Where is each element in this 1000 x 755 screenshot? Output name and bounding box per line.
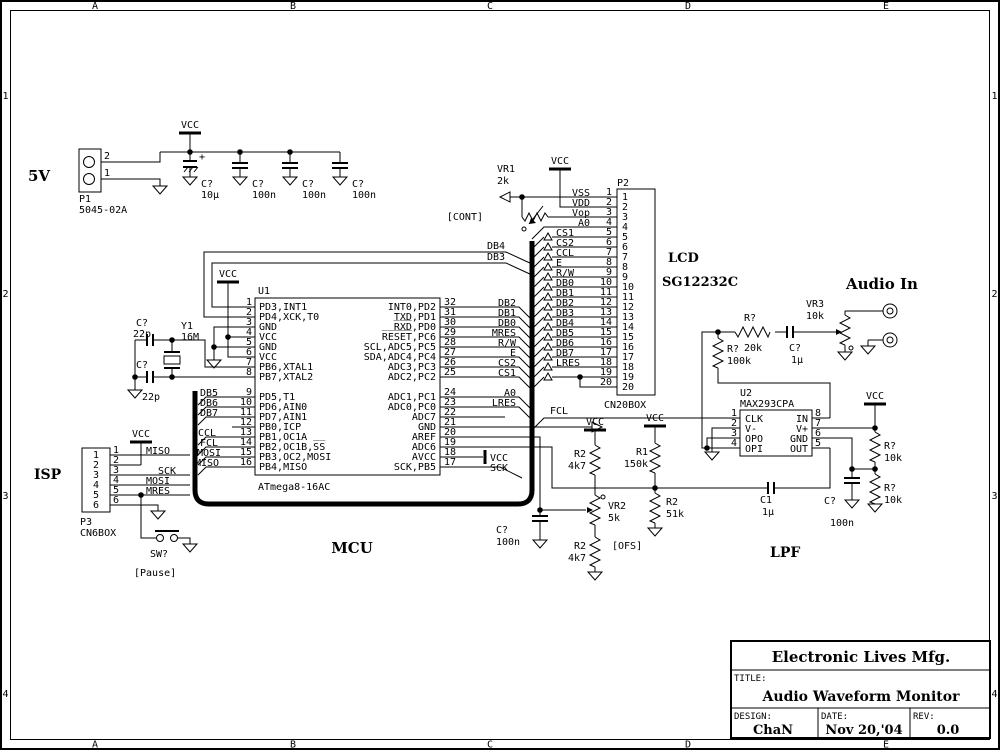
date-value: Nov 20,'04 bbox=[825, 723, 902, 738]
frame-col: D bbox=[685, 1, 691, 12]
schematic-title: Audio Waveform Monitor bbox=[762, 689, 961, 705]
ref-designator: P1 bbox=[79, 194, 91, 205]
vcc-symbol-label: VCC bbox=[181, 120, 199, 131]
trimmer-mark bbox=[601, 495, 605, 499]
section-label-5v: 5V bbox=[28, 167, 50, 185]
part-value: 1µ bbox=[791, 355, 803, 366]
ref-designator: C? bbox=[824, 496, 836, 507]
trimmer-vr3 bbox=[840, 315, 850, 345]
title-block: Electronic Lives Mfg. TITLE: Audio Wavef… bbox=[731, 641, 990, 738]
net-label: DB3 bbox=[487, 252, 505, 263]
bias-network: VCC R1 150k R2 51k bbox=[624, 413, 684, 528]
resistor-r2-51k bbox=[650, 493, 660, 523]
frame-row: 3 bbox=[991, 491, 997, 502]
pin-number: 25 bbox=[444, 367, 456, 378]
audio-input-section: Audio In R? 20k C? 1µ VR3 10k bbox=[718, 275, 918, 366]
section-label-lpf: LPF bbox=[770, 545, 800, 561]
net-label: MISO bbox=[146, 446, 170, 457]
power-section: 5V VCC 2 1 P1 5045-02A + C? 10µ C? 100n … bbox=[28, 120, 376, 216]
part-value: 100n bbox=[302, 190, 326, 201]
function-note: [Pause] bbox=[134, 568, 176, 579]
pin-label: SCK,PB5 bbox=[394, 462, 436, 473]
part-value: 20k bbox=[744, 343, 762, 354]
part-value: 10k bbox=[884, 453, 902, 464]
pin-number: 6 bbox=[113, 495, 119, 506]
net-label: FCL bbox=[550, 406, 568, 417]
design-label: DESIGN: bbox=[734, 712, 772, 722]
frame-col: B bbox=[290, 740, 296, 751]
crystal-body bbox=[164, 356, 180, 364]
net-label: MRES bbox=[146, 486, 170, 497]
net-label: A0 bbox=[578, 218, 590, 229]
part-value: 100k bbox=[727, 356, 751, 367]
function-note: [OFS] bbox=[612, 541, 642, 552]
cap-plates bbox=[768, 478, 860, 494]
pin-label: PB4,MISO bbox=[259, 462, 307, 473]
vcc-symbol-label: VCC bbox=[132, 429, 150, 440]
ref-designator: C? bbox=[352, 179, 364, 190]
pin-number: 1 bbox=[104, 168, 110, 179]
section-label-lcd: LCD bbox=[668, 251, 699, 266]
pin-number: 5 bbox=[815, 438, 821, 449]
frame-row: 1 bbox=[991, 91, 997, 102]
ref-designator: P2 bbox=[617, 178, 629, 189]
frame-row: 2 bbox=[991, 289, 997, 300]
polarity-plus: + bbox=[199, 152, 205, 163]
schematic-page: A B C D E A B C D E 1 2 3 4 1 2 3 4 Elec… bbox=[0, 0, 1000, 750]
company-name: Electronic Lives Mfg. bbox=[772, 648, 951, 666]
vcc-symbol-label: VCC bbox=[586, 417, 604, 428]
ref-designator: R1 bbox=[636, 447, 648, 458]
net-label: LRES bbox=[556, 358, 580, 369]
pin-number: 6 bbox=[93, 500, 99, 511]
ref-designator: R? bbox=[884, 441, 896, 452]
part-value: MAX293CPA bbox=[740, 399, 794, 410]
ofs-network: VCC R2 4k7 VR2 5k R2 4k7 [OFS] bbox=[568, 417, 642, 572]
frame-col: C bbox=[487, 740, 493, 751]
section-label-audio-in: Audio In bbox=[845, 275, 918, 293]
part-value: 100n bbox=[352, 190, 376, 201]
vss-arrow bbox=[500, 192, 510, 202]
part-value: 22p bbox=[133, 329, 151, 340]
pin-label: OUT bbox=[790, 444, 808, 455]
frame-row: 3 bbox=[2, 491, 8, 502]
net-label: LRES bbox=[492, 398, 516, 409]
resistor-r2-bottom bbox=[590, 537, 600, 567]
bus-entry-triangles bbox=[544, 233, 552, 380]
pin-number: 17 bbox=[444, 457, 456, 468]
part-value: CN6BOX bbox=[80, 528, 116, 539]
date-label: DATE: bbox=[821, 712, 848, 722]
ref-designator: VR2 bbox=[608, 501, 626, 512]
ref-designator: R? bbox=[884, 483, 896, 494]
p1-pin2-circle bbox=[84, 157, 95, 168]
resistor-10k-bottom bbox=[870, 474, 880, 504]
frame-col: C bbox=[487, 1, 493, 12]
frame-row: 4 bbox=[2, 689, 8, 700]
aref-cap-plates bbox=[532, 516, 548, 521]
cap-plates bbox=[787, 326, 793, 338]
part-value: 51k bbox=[666, 509, 684, 520]
title-label: TITLE: bbox=[734, 674, 767, 684]
ref-designator: R2 bbox=[666, 497, 678, 508]
frame-row: 2 bbox=[2, 289, 8, 300]
switch-contact bbox=[157, 535, 164, 542]
pin-label: PB7,XTAL2 bbox=[259, 372, 313, 383]
ref-designator: R? bbox=[727, 344, 739, 355]
pin-label: ADC2,PC2 bbox=[388, 372, 436, 383]
part-value: 2k bbox=[497, 176, 509, 187]
part-value: 16M bbox=[181, 332, 199, 343]
net-label: DB7 bbox=[200, 408, 218, 419]
section-label-mcu: MCU bbox=[331, 539, 373, 557]
connector-p1-body bbox=[79, 149, 101, 192]
ref-designator: C? bbox=[789, 343, 801, 354]
part-value: 10k bbox=[884, 495, 902, 506]
ref-designator: C? bbox=[496, 525, 508, 536]
frame-col: A bbox=[92, 1, 98, 12]
ref-designator: C? bbox=[136, 360, 148, 371]
frame-col: E bbox=[883, 740, 889, 751]
resistor-r2-top bbox=[590, 445, 600, 475]
ref-designator: R2 bbox=[574, 449, 586, 460]
ref-designator: U2 bbox=[740, 388, 752, 399]
frame-col: E bbox=[883, 1, 889, 12]
frame-row: 1 bbox=[2, 91, 8, 102]
vcc-symbol-label: VCC bbox=[219, 269, 237, 280]
part-value: 100n bbox=[830, 518, 854, 529]
pin-number: 4 bbox=[731, 438, 737, 449]
rev-label: REV: bbox=[913, 712, 935, 722]
part-value: 150k bbox=[624, 459, 648, 470]
ref-designator: C? bbox=[201, 179, 213, 190]
resistor-r1 bbox=[650, 443, 660, 473]
trimmer-mark bbox=[849, 346, 853, 350]
pin-number: 2 bbox=[104, 151, 110, 162]
lcd-connector-section: P2 CN20BOX VCC VR1 2k [CONT] LCD SG12232… bbox=[447, 156, 738, 411]
function-note: [CONT] bbox=[447, 212, 483, 223]
pin-number: 8 bbox=[246, 367, 252, 378]
section-label-isp: ISP bbox=[34, 467, 62, 483]
part-value: 22p bbox=[142, 392, 160, 403]
vcc-symbol-label: VCC bbox=[551, 156, 569, 167]
part-value: 10µ bbox=[201, 190, 219, 201]
part-value: 10k bbox=[806, 311, 824, 322]
ref-designator: C? bbox=[302, 179, 314, 190]
p1-pin1-circle bbox=[84, 174, 95, 185]
resistor-10k-top bbox=[870, 432, 880, 462]
ref-designator: C? bbox=[136, 318, 148, 329]
ref-designator: VR3 bbox=[806, 299, 824, 310]
switch-contact bbox=[171, 535, 178, 542]
ref-designator: C? bbox=[252, 179, 264, 190]
ref-designator: R? bbox=[744, 313, 756, 324]
resistor-100k bbox=[713, 338, 723, 368]
part-value: CN20BOX bbox=[604, 400, 646, 411]
audio-jack-sleeve-inner bbox=[887, 337, 893, 343]
lcd-part-number: SG12232C bbox=[662, 275, 738, 290]
frame-col: D bbox=[685, 740, 691, 751]
isp-section: ISP VCC 1 2 3 4 5 6 1 2 3 4 5 6 MISO SCK… bbox=[34, 429, 190, 579]
resistor-20k bbox=[735, 327, 770, 337]
ref-designator: SW? bbox=[150, 549, 168, 560]
cap-plates bbox=[183, 161, 348, 168]
ref-designator: U1 bbox=[258, 286, 270, 297]
design-value: ChaN bbox=[753, 723, 793, 738]
audio-jack-tip bbox=[883, 304, 897, 318]
part-value: 4k7 bbox=[568, 461, 586, 472]
part-value: 100n bbox=[496, 537, 520, 548]
ref-designator: P3 bbox=[80, 517, 92, 528]
part-value: 5k bbox=[608, 513, 620, 524]
ref-designator: C1 bbox=[760, 495, 772, 506]
rev-value: 0.0 bbox=[937, 723, 960, 738]
pin-number: 20 bbox=[600, 377, 612, 388]
part-value: 100n bbox=[252, 190, 276, 201]
lpf-section: U2 MAX293CPA 1 2 3 4 CLK V- OPO OPI 8 7 … bbox=[532, 332, 902, 561]
pin-number: 16 bbox=[240, 457, 252, 468]
ref-designator: VR1 bbox=[497, 164, 515, 175]
vcc-symbol-label: VCC bbox=[866, 391, 884, 402]
frame-col: B bbox=[290, 1, 296, 12]
part-value: 5045-02A bbox=[79, 205, 127, 216]
net-label: DB4 bbox=[487, 241, 505, 252]
frame-row: 4 bbox=[991, 689, 997, 700]
frame-col: A bbox=[92, 740, 98, 751]
audio-jack-tip-inner bbox=[887, 308, 893, 314]
part-value: 4k7 bbox=[568, 553, 586, 564]
ref-designator: R2 bbox=[574, 541, 586, 552]
audio-jack-sleeve bbox=[883, 333, 897, 347]
pin-number: 20 bbox=[622, 382, 634, 393]
net-label: SCK bbox=[490, 463, 508, 474]
part-value: 1µ bbox=[762, 507, 774, 518]
schematic-canvas: A B C D E A B C D E 1 2 3 4 1 2 3 4 Elec… bbox=[0, 0, 1000, 750]
trimmer-mark bbox=[522, 227, 526, 231]
net-label: CS1 bbox=[498, 368, 516, 379]
net-label: MISO bbox=[195, 458, 219, 469]
pin-label: OPI bbox=[745, 444, 763, 455]
part-value: ATmega8-16AC bbox=[258, 482, 330, 493]
ref-designator: Y1 bbox=[181, 321, 193, 332]
